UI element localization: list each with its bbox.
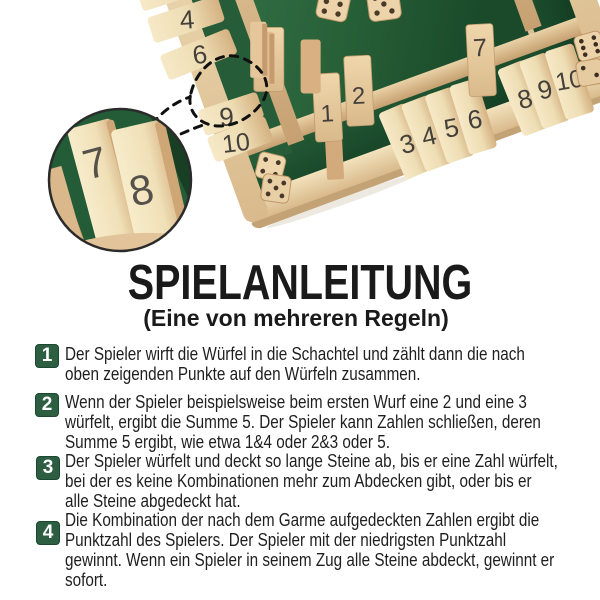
svg-text:9: 9 bbox=[218, 101, 235, 132]
svg-text:4: 4 bbox=[179, 4, 196, 35]
svg-text:2: 2 bbox=[351, 82, 366, 110]
svg-text:10: 10 bbox=[221, 128, 252, 159]
svg-text:1: 1 bbox=[320, 100, 335, 128]
svg-text:7: 7 bbox=[472, 34, 487, 63]
